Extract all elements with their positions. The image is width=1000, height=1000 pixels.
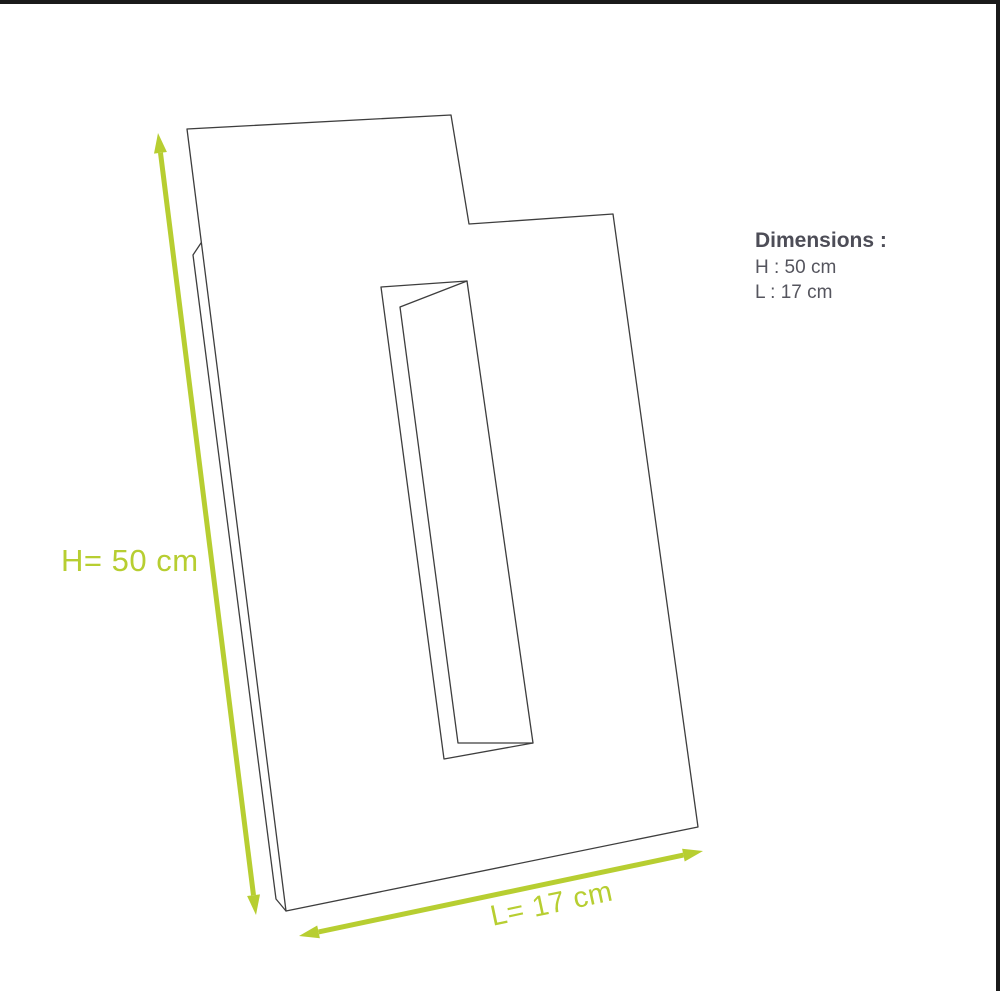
dimensions-info-panel: Dimensions : H : 50 cm L : 17 cm: [755, 227, 887, 305]
length-arrow-head-left: [299, 926, 320, 939]
height-arrow-head-bottom: [247, 894, 260, 915]
diagram-canvas: H= 50 cm L= 17 cm Dimensions : H : 50 cm…: [0, 0, 1000, 1000]
length-arrow-head-right: [682, 849, 703, 862]
dimensions-panel-length-line: L : 17 cm: [755, 280, 887, 305]
plate-line-drawing: [0, 0, 1000, 1000]
height-dimension-label: H= 50 cm: [61, 543, 199, 579]
height-arrow-shaft: [161, 153, 254, 895]
height-arrow-head-top: [154, 133, 167, 154]
dimensions-panel-title: Dimensions :: [755, 227, 887, 255]
plate-left-side-edge: [193, 243, 286, 911]
height-arrow-icon: [154, 133, 260, 915]
plate-front-outline: [187, 115, 698, 911]
dimensions-panel-height-line: H : 50 cm: [755, 255, 887, 280]
slot-front-outline: [381, 281, 533, 759]
slot-inner-wall: [400, 281, 533, 743]
